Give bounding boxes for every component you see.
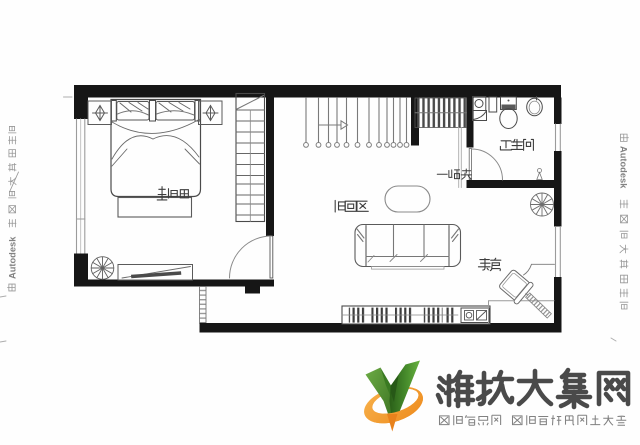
svg-text:Autodesk: Autodesk xyxy=(619,146,629,189)
svg-text:Autodesk: Autodesk xyxy=(8,236,18,279)
